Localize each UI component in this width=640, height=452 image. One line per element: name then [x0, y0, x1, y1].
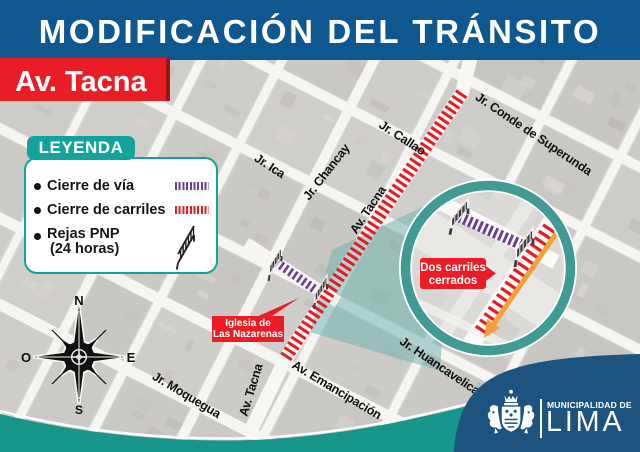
svg-text:N: N: [74, 293, 83, 308]
svg-text:S: S: [75, 403, 83, 417]
svg-text:O: O: [21, 350, 31, 365]
svg-text:E: E: [127, 350, 136, 365]
